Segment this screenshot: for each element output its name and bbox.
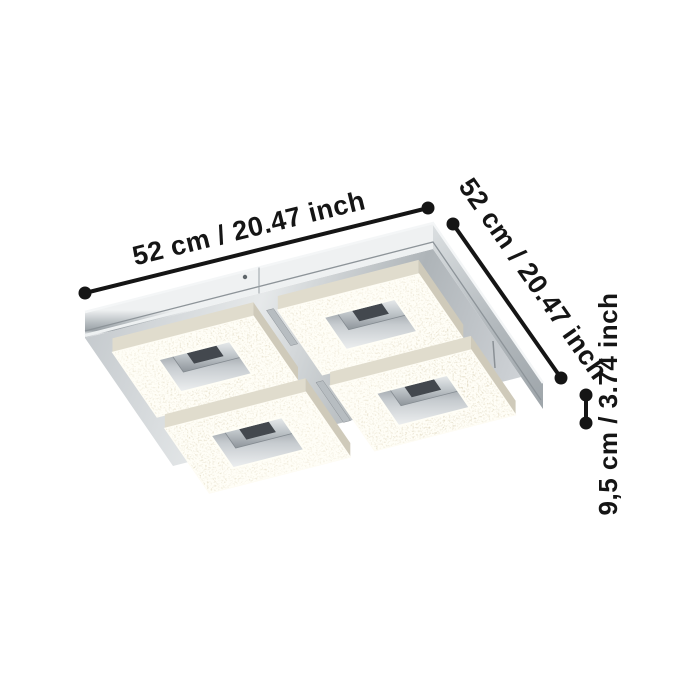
dimension-endpoint-dot bbox=[447, 218, 460, 231]
dimension-endpoint-dot bbox=[422, 202, 435, 215]
product-dimension-diagram: 52 cm / 20.47 inch 52 cm / 20.47 inch 9,… bbox=[0, 0, 700, 700]
height-dimension-label: 9,5 cm / 3.74 inch bbox=[593, 293, 623, 516]
dimension-endpoint-dot bbox=[580, 389, 593, 402]
dimension-endpoint-dot bbox=[580, 417, 593, 430]
diagram-canvas: 52 cm / 20.47 inch 52 cm / 20.47 inch 9,… bbox=[0, 0, 700, 700]
height-dimension: 9,5 cm / 3.74 inch bbox=[580, 293, 624, 516]
dimension-endpoint-dot bbox=[79, 287, 92, 300]
mounting-screw bbox=[243, 275, 247, 279]
dimension-endpoint-dot bbox=[555, 372, 568, 385]
